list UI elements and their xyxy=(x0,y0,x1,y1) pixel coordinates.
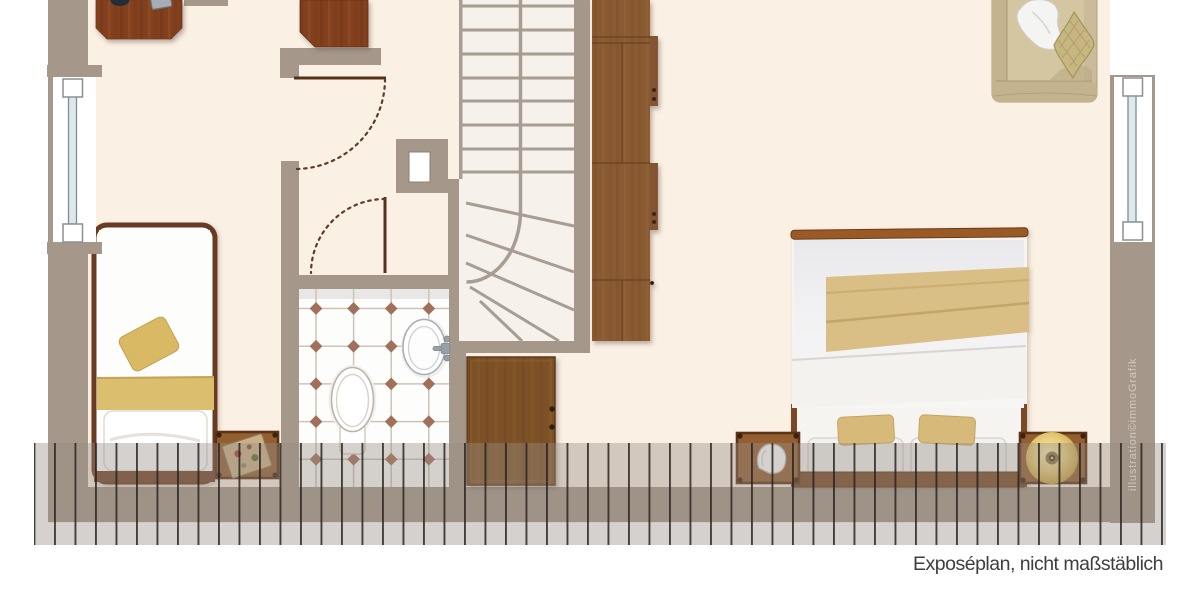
svg-text:illustration©immoGrafik: illustration©immoGrafik xyxy=(1127,358,1139,491)
svg-text:Exposéplan, nicht maßstäblich: Exposéplan, nicht maßstäblich xyxy=(913,553,1163,575)
